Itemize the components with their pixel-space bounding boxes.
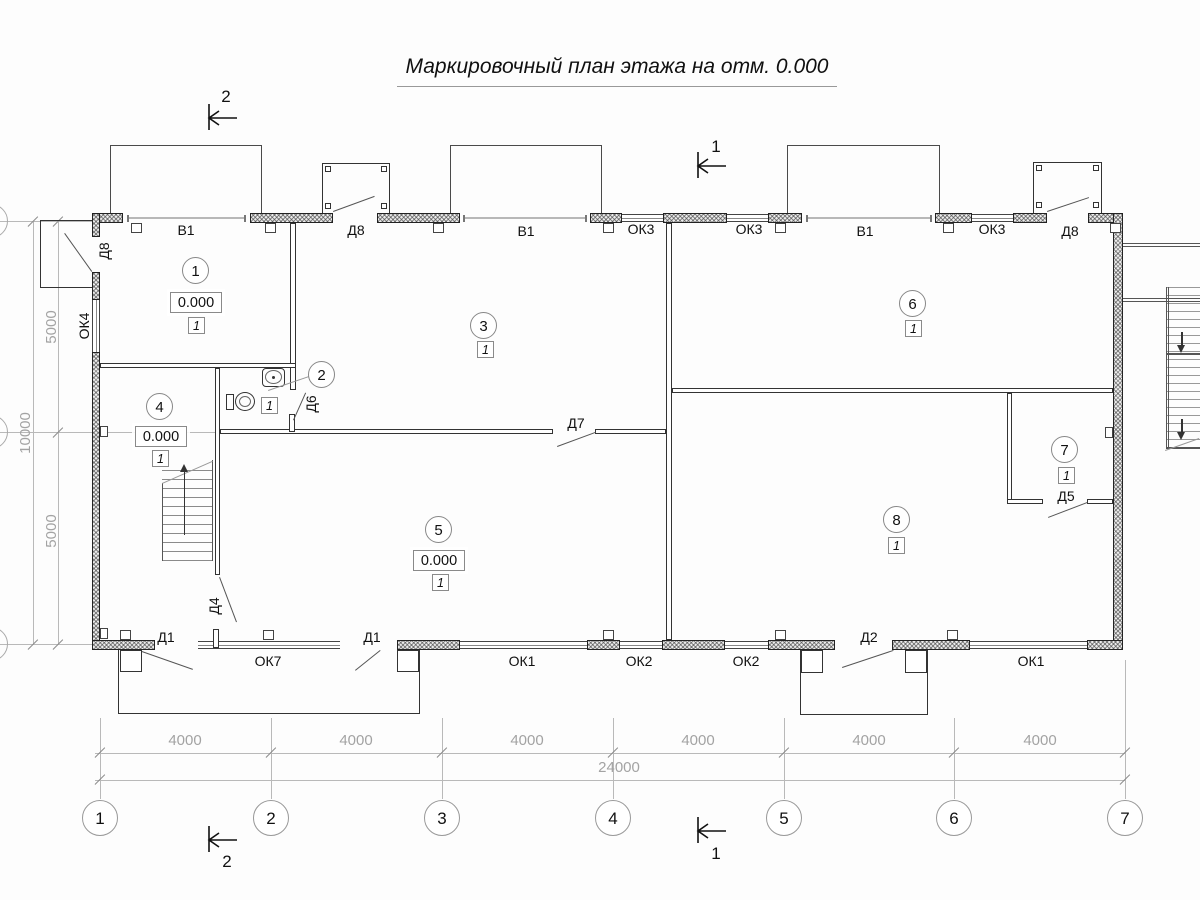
extension-line — [954, 718, 955, 799]
section-mark-label: 2 — [217, 853, 237, 870]
porch-outline — [800, 650, 928, 715]
finish-type-box: 1 — [1058, 467, 1075, 484]
window-ok2 — [725, 641, 768, 649]
wall-segment — [590, 213, 622, 223]
wall-segment — [768, 640, 835, 650]
canopy-outline — [110, 145, 262, 213]
finish-type-box: 1 — [152, 450, 169, 467]
door-label-d2: Д2 — [849, 629, 889, 645]
window-label-ok7: ОК7 — [248, 653, 288, 669]
section-mark-label: 1 — [706, 845, 726, 862]
toilet-tank — [226, 394, 234, 410]
wall-segment — [935, 213, 972, 223]
interior-wall — [1007, 393, 1012, 504]
pilaster — [1105, 427, 1113, 438]
door-label-d8: Д8 — [96, 231, 112, 271]
wall-segment — [377, 213, 460, 223]
wall-segment — [1013, 213, 1047, 223]
window-v1 — [806, 217, 932, 219]
pilaster — [263, 630, 274, 640]
window-label-v1: В1 — [845, 223, 885, 239]
window-ok4 — [92, 300, 100, 352]
exterior-stair-treads — [1166, 287, 1200, 448]
axis-circle-6: 6 — [936, 800, 972, 836]
window-label-ok3: ОК3 — [621, 221, 661, 237]
section-mark-2-bottom — [203, 822, 239, 856]
finish-type-box: 1 — [188, 317, 205, 334]
stair-edge — [162, 483, 163, 561]
porch-post — [1093, 165, 1099, 171]
dim-label-4000: 4000 — [497, 733, 557, 749]
elevation-box: 0.000 — [413, 550, 465, 571]
finish-type-box: 1 — [477, 341, 494, 358]
section-mark-label: 1 — [706, 138, 726, 155]
room-number-circle: 3 — [470, 312, 497, 339]
stair-arrow-head — [1177, 345, 1185, 353]
room-number-circle: 6 — [899, 290, 926, 317]
sink-drain — [272, 376, 275, 379]
wall-segment — [892, 640, 970, 650]
wall-segment — [663, 213, 727, 223]
section-mark-label: 2 — [216, 88, 236, 105]
axis-circle-5: 5 — [766, 800, 802, 836]
interior-wall — [1087, 499, 1113, 504]
room-number-circle: 2 — [308, 361, 335, 388]
dim-label-5000-bottom: 5000 — [44, 501, 60, 561]
finish-type-box: 1 — [888, 537, 905, 554]
exterior-stair-landing — [1123, 243, 1200, 247]
dim-label-24000: 24000 — [584, 760, 654, 776]
stair-arrow-head — [180, 464, 188, 472]
window-ok1 — [460, 641, 587, 649]
window-label-ok4: ОК4 — [76, 306, 92, 346]
porch-post — [1036, 202, 1042, 208]
dim-label-10000: 10000 — [18, 403, 34, 463]
porch-post — [325, 166, 331, 172]
interior-wall — [215, 368, 220, 575]
pilaster — [100, 426, 108, 437]
dim-label-4000: 4000 — [839, 733, 899, 749]
door-label-d6: Д6 — [303, 384, 319, 424]
row-axis-circle — [0, 204, 8, 238]
pilaster — [265, 223, 276, 233]
axis-circle-3: 3 — [424, 800, 460, 836]
pilaster — [947, 630, 958, 640]
stair-treads — [162, 470, 213, 561]
extension-line — [100, 718, 101, 799]
pilaster — [1110, 223, 1121, 233]
window-label-ok2: ОК2 — [619, 653, 659, 669]
wall-segment — [92, 272, 100, 300]
window-label-ok1: ОК1 — [502, 653, 542, 669]
extension-line — [442, 718, 443, 799]
door-label-d5: Д5 — [1046, 488, 1086, 504]
room-number-circle: 4 — [146, 393, 173, 420]
porch-outline — [40, 220, 92, 288]
window-ok2 — [620, 641, 662, 649]
finish-type-box: 1 — [432, 574, 449, 591]
room-number-circle: 8 — [883, 506, 910, 533]
stair-down-arrow — [1181, 332, 1183, 346]
axis-circle-7: 7 — [1107, 800, 1143, 836]
window-v1 — [463, 217, 587, 219]
window-ok7 — [198, 641, 340, 649]
interior-wall — [666, 223, 672, 640]
finish-type-box: 1 — [905, 320, 922, 337]
wall-segment — [250, 213, 333, 223]
pilaster — [775, 223, 786, 233]
door-label-d1: Д1 — [146, 629, 186, 645]
canopy-outline — [450, 145, 602, 215]
interior-wall — [1007, 499, 1043, 504]
stair-edge — [212, 460, 214, 561]
door-swing — [557, 432, 596, 447]
extension-line — [784, 718, 785, 799]
wall-segment — [768, 213, 802, 223]
interior-wall — [672, 388, 1113, 393]
dim-label-4000: 4000 — [155, 733, 215, 749]
wall-segment — [662, 640, 725, 650]
finish-type-box: 1 — [261, 397, 278, 414]
door-label-d4: Д4 — [206, 586, 222, 626]
row-axis-circle — [0, 415, 8, 449]
window-label-ok2: ОК2 — [726, 653, 766, 669]
row-axis-circle — [0, 627, 8, 661]
door-label-d7: Д7 — [556, 415, 596, 431]
porch-post — [381, 166, 387, 172]
section-mark-1-bottom — [692, 813, 728, 847]
wall-segment — [1113, 213, 1123, 650]
room-number-circle: 5 — [425, 516, 452, 543]
axis-circle-1: 1 — [82, 800, 118, 836]
pilaster — [100, 628, 108, 639]
door-leaf — [213, 629, 219, 648]
wall-segment — [397, 640, 460, 650]
elevation-box: 0.000 — [170, 292, 222, 313]
interior-wall — [595, 429, 666, 434]
window-label-v1: В1 — [166, 222, 206, 238]
door-label-d8: Д8 — [1050, 223, 1090, 239]
room-number-circle: 7 — [1051, 436, 1078, 463]
door-label-d8: Д8 — [336, 222, 376, 238]
pilaster — [433, 223, 444, 233]
exterior-stair-line — [1166, 353, 1200, 355]
drawing-title: Маркировочный план этажа на отм. 0.000 — [397, 55, 837, 87]
wall-segment — [92, 352, 100, 650]
dimension-line — [95, 780, 1125, 781]
porch-post — [1036, 165, 1042, 171]
porch-outline — [322, 163, 390, 213]
porch-post — [325, 203, 331, 209]
porch-post — [1093, 202, 1099, 208]
canopy-outline — [787, 145, 940, 213]
pilaster — [775, 630, 786, 640]
toilet-bowl — [239, 396, 251, 407]
wall-segment — [1087, 640, 1123, 650]
axis-circle-4: 4 — [595, 800, 631, 836]
stair-arrow-head — [1177, 432, 1185, 440]
pilaster — [120, 630, 131, 640]
dim-label-4000: 4000 — [1010, 733, 1070, 749]
wall-segment — [587, 640, 620, 650]
door-label-d1: Д1 — [352, 629, 392, 645]
window-label-ok3: ОК3 — [729, 221, 769, 237]
extension-line — [271, 718, 272, 799]
room-number-circle: 1 — [182, 257, 209, 284]
window-v1 — [127, 217, 246, 219]
pilaster — [131, 223, 142, 233]
window-label-ok3: ОК3 — [972, 221, 1012, 237]
porch-post — [381, 203, 387, 209]
door-swing — [1048, 502, 1088, 518]
axis-circle-2: 2 — [253, 800, 289, 836]
floor-plan-drawing: Маркировочный план этажа на отм. 0.000 5… — [0, 0, 1200, 900]
dim-label-4000: 4000 — [326, 733, 386, 749]
elevation-box: 0.000 — [135, 426, 187, 447]
stair-direction-arrow — [184, 471, 186, 535]
stair-down-arrow — [1181, 419, 1183, 433]
pilaster — [603, 223, 614, 233]
pilaster — [603, 630, 614, 640]
axis-line — [0, 644, 92, 645]
interior-wall — [220, 429, 553, 434]
dim-label-5000-top: 5000 — [44, 297, 60, 357]
window-ok1 — [970, 641, 1087, 649]
pilaster — [943, 223, 954, 233]
dim-label-4000: 4000 — [668, 733, 728, 749]
window-label-v1: В1 — [506, 223, 546, 239]
window-label-ok1: ОК1 — [1011, 653, 1051, 669]
